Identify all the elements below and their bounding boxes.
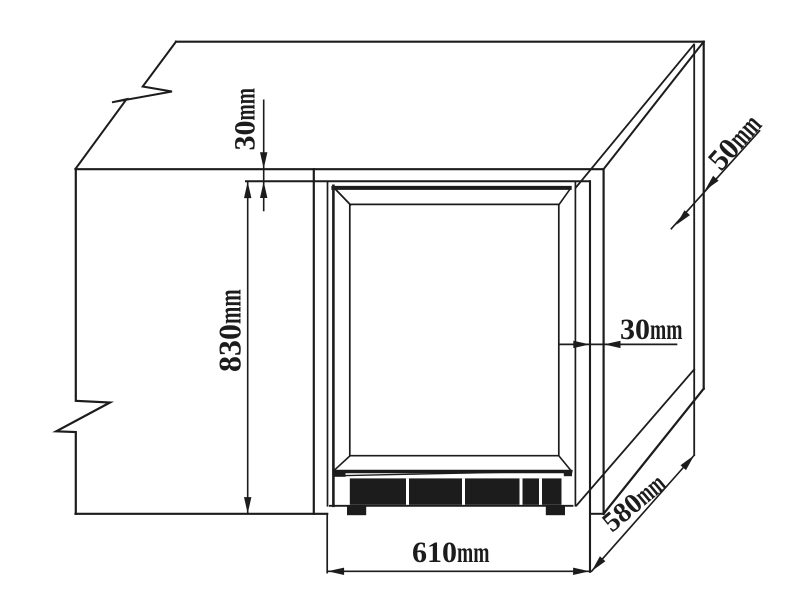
svg-text:30: 30: [229, 121, 262, 151]
svg-text:mm: mm: [650, 313, 682, 346]
svg-text:610: 610: [412, 536, 457, 569]
svg-text:830: 830: [212, 324, 248, 372]
svg-text:30: 30: [620, 313, 650, 346]
svg-text:mm: mm: [212, 289, 248, 324]
svg-text:mm: mm: [457, 536, 489, 569]
svg-text:mm: mm: [228, 88, 261, 120]
